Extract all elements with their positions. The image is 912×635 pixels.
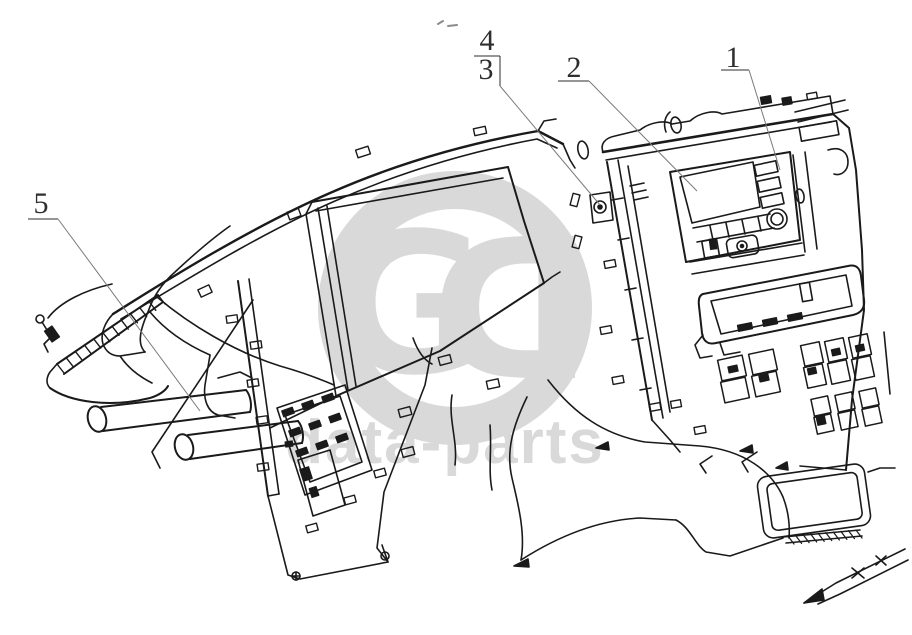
right-control-panel [590,96,890,470]
watermark-logo: G D data-parts [285,190,605,477]
radio-button [754,161,778,176]
callout-1-number: 1 [726,41,741,74]
radio-button [757,177,781,192]
radio-head-unit [670,152,800,262]
center-vent-assembly [695,265,864,358]
callout-2-number: 2 [567,51,582,84]
callout-2: 2 [558,51,697,191]
callout-2-leader-line [589,81,697,191]
watermark-monogram-right: D [431,197,593,424]
bottom-right-trim [804,549,908,604]
radio-knob [767,209,787,229]
callout-5: 5 [28,187,200,411]
radio-button [760,193,784,208]
wiring-harness [36,284,168,403]
diagram-canvas: G D data-parts [0,0,912,635]
stray-mark [438,21,457,26]
storage-bin [756,463,895,539]
callout-5-number: 5 [34,187,49,220]
radio-display-screen [680,162,760,223]
callout-1-leader-line [749,70,780,170]
diagram-page: G D data-parts [0,0,912,635]
callout-3-number: 3 [479,53,494,86]
